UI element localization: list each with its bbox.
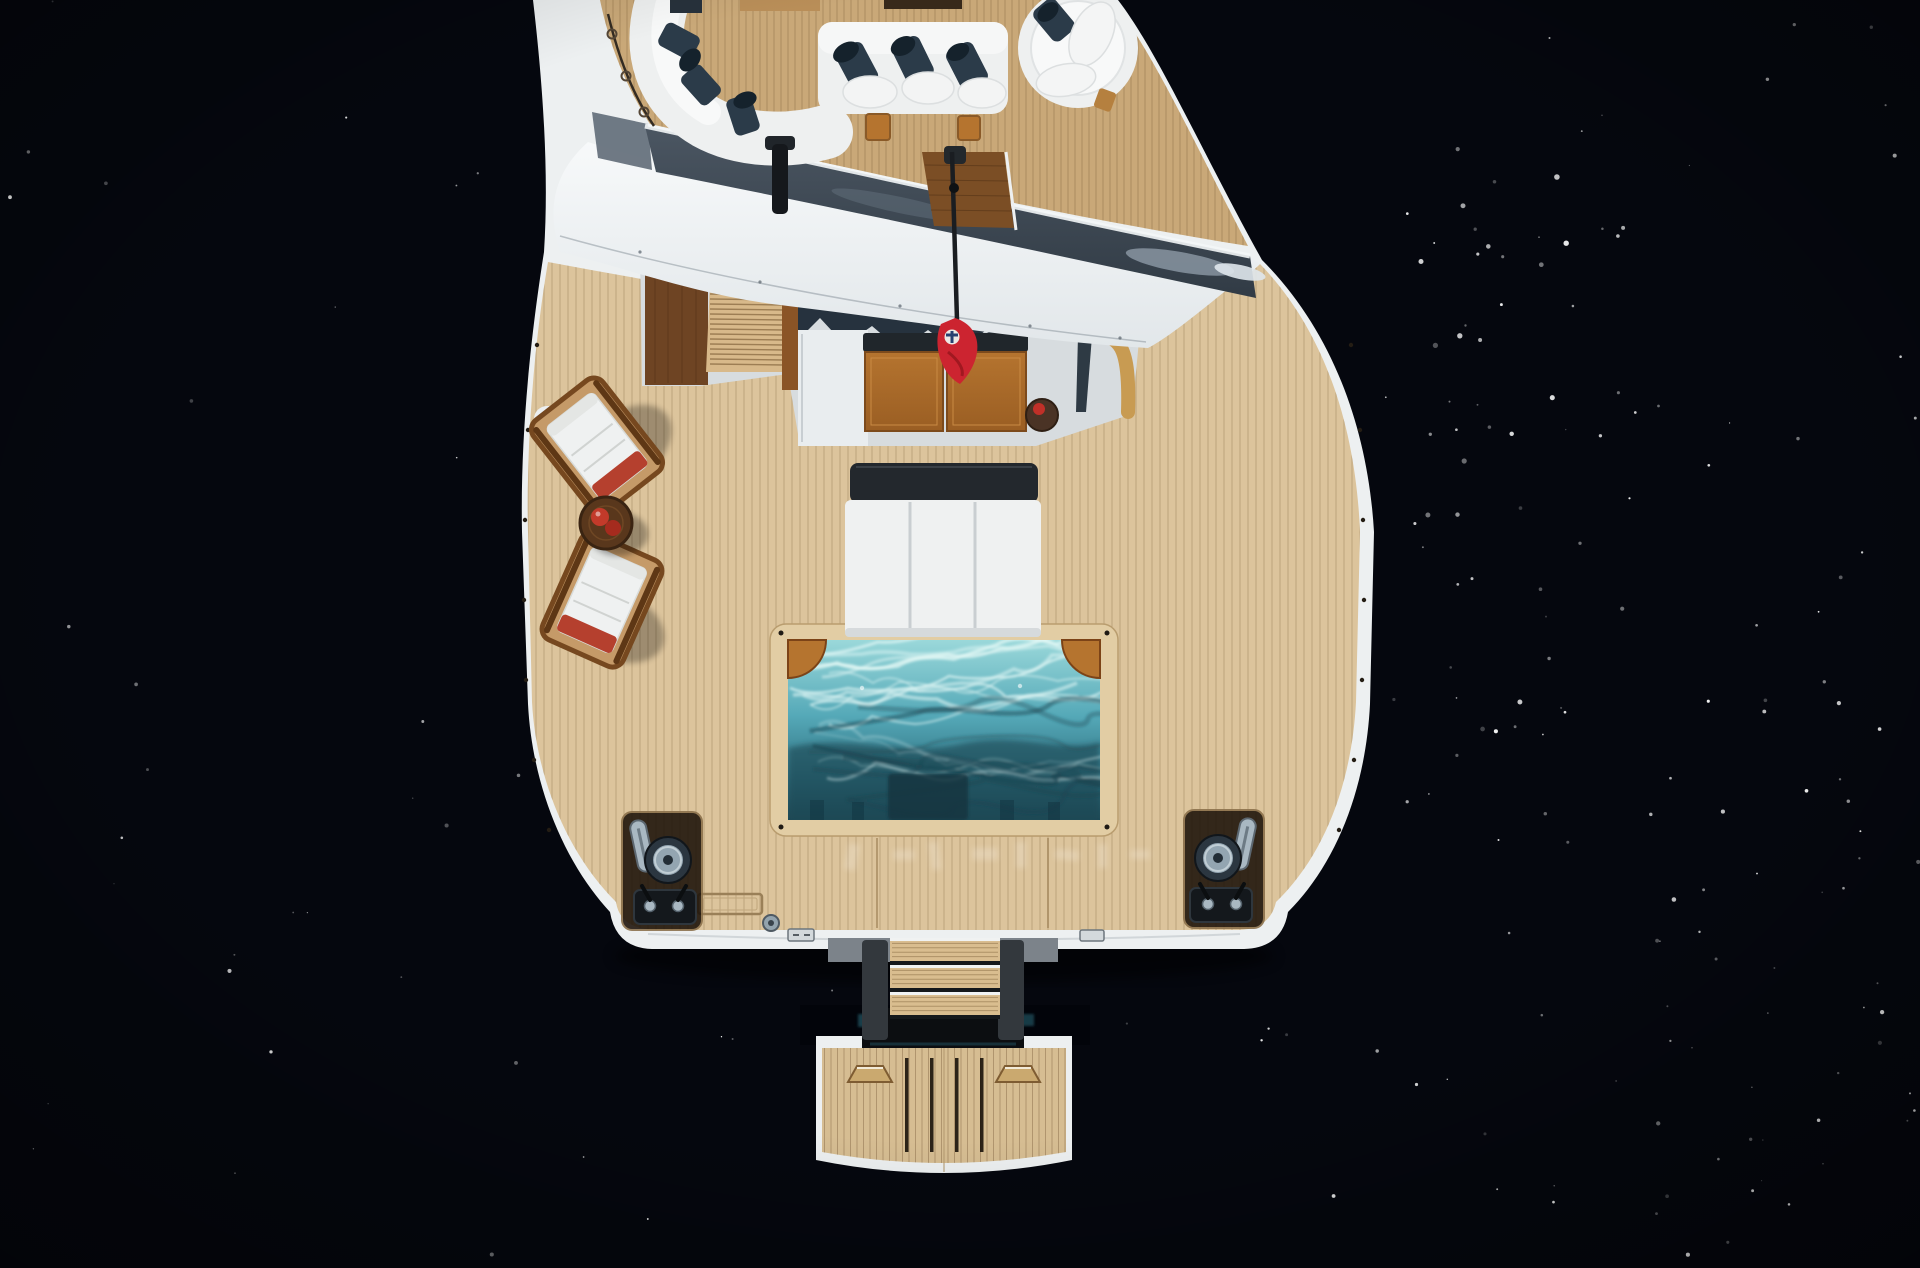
transom-plate-port [788,929,814,941]
flagstaff-fitting [949,183,959,193]
round-deck-fitting [763,915,779,931]
pool-fitting-dot [860,686,864,690]
mooring-station-starboard [1184,810,1264,928]
mooring-station-port [622,812,702,930]
red-item [605,520,621,536]
aerial-yacht-photo [0,0,1920,1268]
red-item [591,508,609,526]
stair-rail-right [998,940,1024,1040]
flagstaff-mount [944,146,966,164]
transom-plate-starboard [1080,930,1104,941]
pool-fitting-dot [1018,684,1022,688]
round-side-table [1026,399,1058,431]
companionway-trim-strip [782,295,800,390]
mattress-foot-shading [845,628,1041,637]
pool-submerged-bench [888,774,968,820]
sundeck-aft-teak-corner [922,152,1014,228]
photo-aerial-yacht: { "meta": { "title": "Aerial top-down ph… [0,0,1920,1268]
stair-treads [890,938,1000,1019]
white-seat-rolls [843,72,1006,108]
top-dark-pad [670,0,702,13]
stair-rail-left [862,940,888,1040]
sunpad-white-mattresses [845,500,1041,637]
top-dark-table [884,0,962,9]
plunge-pool [770,624,1163,836]
swim-platform [816,1036,1072,1178]
straight-sofa [818,22,1008,114]
red-towel [1033,403,1045,415]
sunpad-group [845,463,1041,637]
top-teak-table [740,0,820,11]
sunpad-black-headrest [850,463,1038,503]
white-structure-column [798,330,868,446]
stern-stairs [828,938,1058,1048]
